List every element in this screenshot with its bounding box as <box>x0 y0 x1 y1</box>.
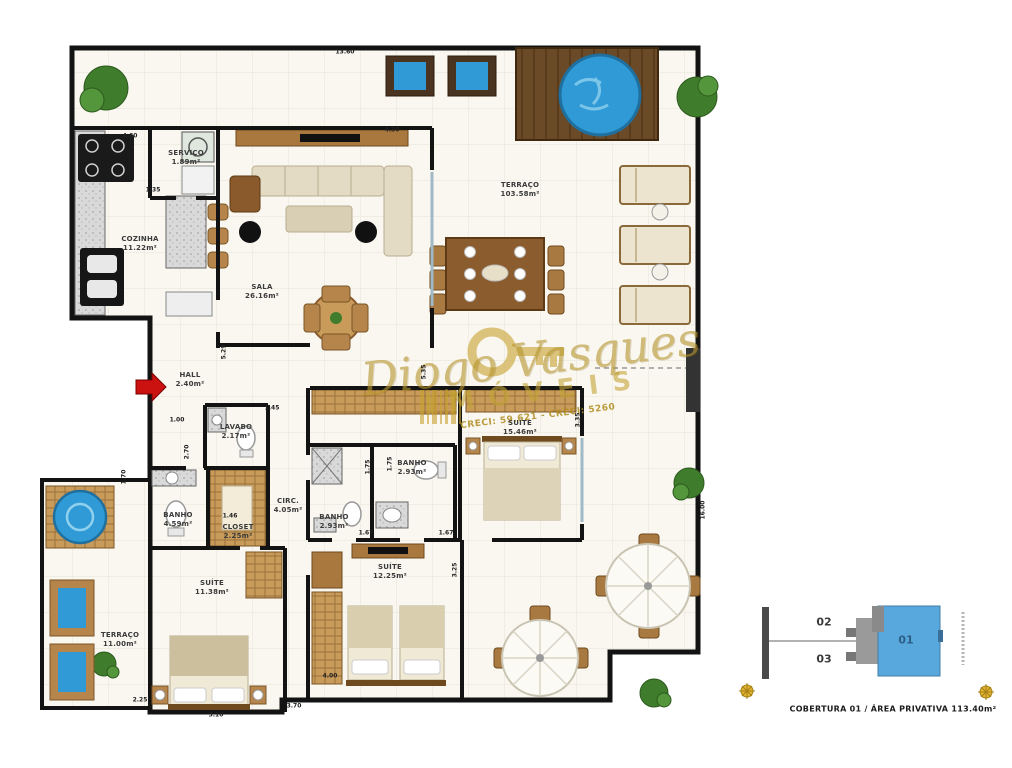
dimension-label: 4.00 <box>323 673 338 680</box>
room-label-suite-master: SUÍTE15.46m² <box>503 419 537 437</box>
floor-plan-graphic <box>0 0 1012 768</box>
dimension-label: 2.70 <box>184 445 191 460</box>
dimension-label: 4.30 <box>385 127 400 134</box>
room-label-banho-1: BANHO2.93m² <box>319 513 348 531</box>
dimension-label: 1.70 <box>121 470 128 485</box>
room-label-terraco-2: TERRAÇO11.00m² <box>101 631 139 649</box>
dimension-label: 1.46 <box>223 513 238 520</box>
compass-rosette-icon <box>739 683 755 699</box>
dimension-label: 3.70 <box>287 703 302 710</box>
room-label-suite-3: SUÍTE11.38m² <box>195 579 229 597</box>
dimension-label: 1.67 <box>359 530 374 537</box>
compass-rosette-icon <box>978 684 994 700</box>
dimension-label: 1.67 <box>439 530 454 537</box>
room-label-terraco: TERRAÇO103.58m² <box>501 181 540 199</box>
room-label-lavabo: LAVABO2.17m² <box>220 423 252 441</box>
dimension-label: 1.45 <box>265 405 280 412</box>
room-label-sala: SALA26.16m² <box>245 283 279 301</box>
dimension-label: 1.35 <box>146 187 161 194</box>
floor-plan-page: SERVIÇO1.89m² COZINHA11.22m² SALA26.16m²… <box>0 0 1012 768</box>
pool <box>516 48 658 140</box>
keyplan-unit-03: 03 <box>816 653 831 666</box>
dimension-label: 1.75 <box>387 457 394 472</box>
dimension-label: 4.60 <box>123 133 138 140</box>
dimension-label: 5.35 <box>421 365 428 380</box>
room-label-hall: HALL2.40m² <box>176 371 205 389</box>
dimension-label: 2.25 <box>133 697 148 704</box>
keyplan-unit-01: 01 <box>898 634 913 647</box>
room-label-servico: SERVIÇO1.89m² <box>168 149 204 167</box>
dimension-label: 13.60 <box>336 49 355 56</box>
dimension-label: 1.00 <box>170 417 185 424</box>
key-plan-graphic <box>739 606 994 700</box>
room-label-closet: CLOSET2.25m² <box>222 523 253 541</box>
dimension-label: 5.29 <box>221 345 228 360</box>
dimension-label: 3.10 <box>209 712 224 719</box>
room-label-banho-2: BANHO2.93m² <box>397 459 426 477</box>
dining-set <box>430 238 564 314</box>
room-label-suite-2: SUÍTE12.25m² <box>373 563 407 581</box>
keyplan-unit-02: 02 <box>816 616 831 629</box>
room-label-banho-3: BANHO4.59m² <box>163 511 192 529</box>
dimension-label: 3.35 <box>575 413 582 428</box>
dimension-label: 16.00 <box>700 501 707 520</box>
dimension-label: 1.75 <box>365 460 372 475</box>
keyplan-caption: COBERTURA 01 / ÁREA PRIVATIVA 113.40m² <box>790 705 997 714</box>
room-label-circ: CIRC.4.05m² <box>274 497 303 515</box>
dimension-label: 3.25 <box>452 563 459 578</box>
room-label-cozinha: COZINHA11.22m² <box>121 235 158 253</box>
